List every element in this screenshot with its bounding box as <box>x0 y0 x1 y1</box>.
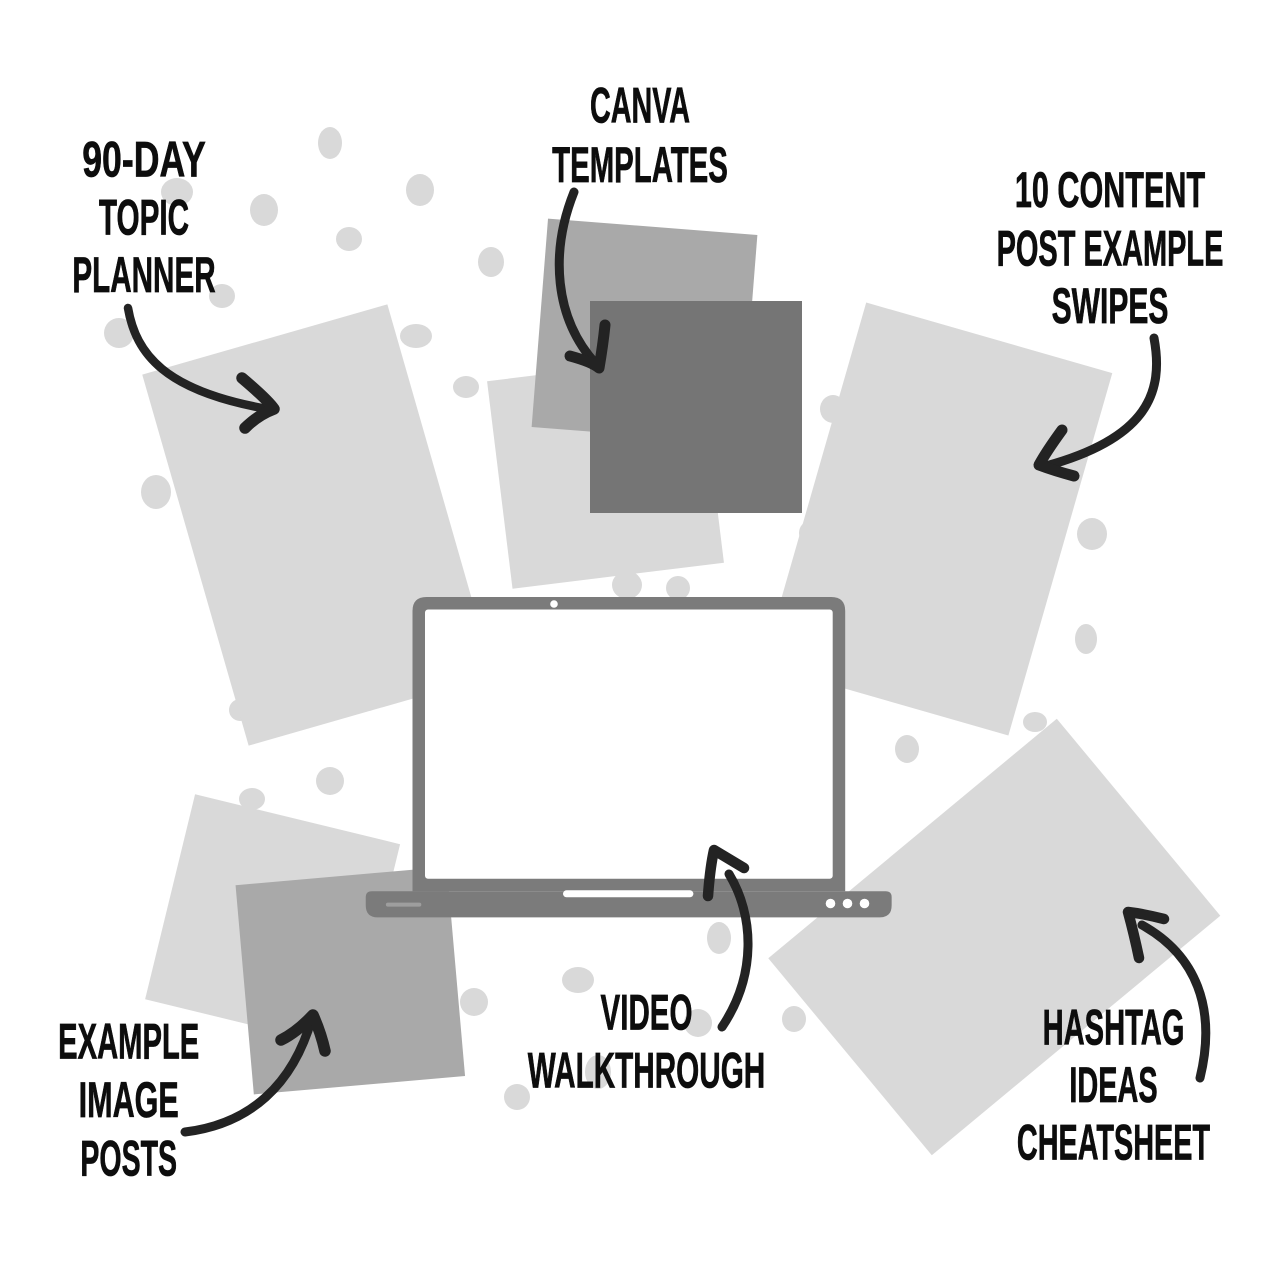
svg-text:PLANNER: PLANNER <box>72 247 215 303</box>
svg-text:IMAGE: IMAGE <box>79 1071 179 1128</box>
svg-text:SWIPES: SWIPES <box>1052 277 1169 334</box>
svg-text:TOPIC: TOPIC <box>99 189 189 245</box>
svg-text:TEMPLATES: TEMPLATES <box>552 137 728 193</box>
svg-text:10 CONTENT: 10 CONTENT <box>1015 161 1206 218</box>
svg-text:90-DAY: 90-DAY <box>82 131 206 188</box>
svg-text:WALKTHROUGH: WALKTHROUGH <box>528 1042 765 1098</box>
svg-text:CHEATSHEET: CHEATSHEET <box>1017 1114 1210 1171</box>
svg-text:POSTS: POSTS <box>80 1130 177 1187</box>
svg-text:EXAMPLE: EXAMPLE <box>58 1013 199 1069</box>
svg-text:VIDEO: VIDEO <box>601 984 693 1040</box>
svg-text:HASHTAG: HASHTAG <box>1043 999 1185 1055</box>
svg-text:CANVA: CANVA <box>590 77 690 134</box>
svg-text:POST EXAMPLE: POST EXAMPLE <box>997 220 1224 276</box>
svg-text:IDEAS: IDEAS <box>1069 1057 1157 1113</box>
